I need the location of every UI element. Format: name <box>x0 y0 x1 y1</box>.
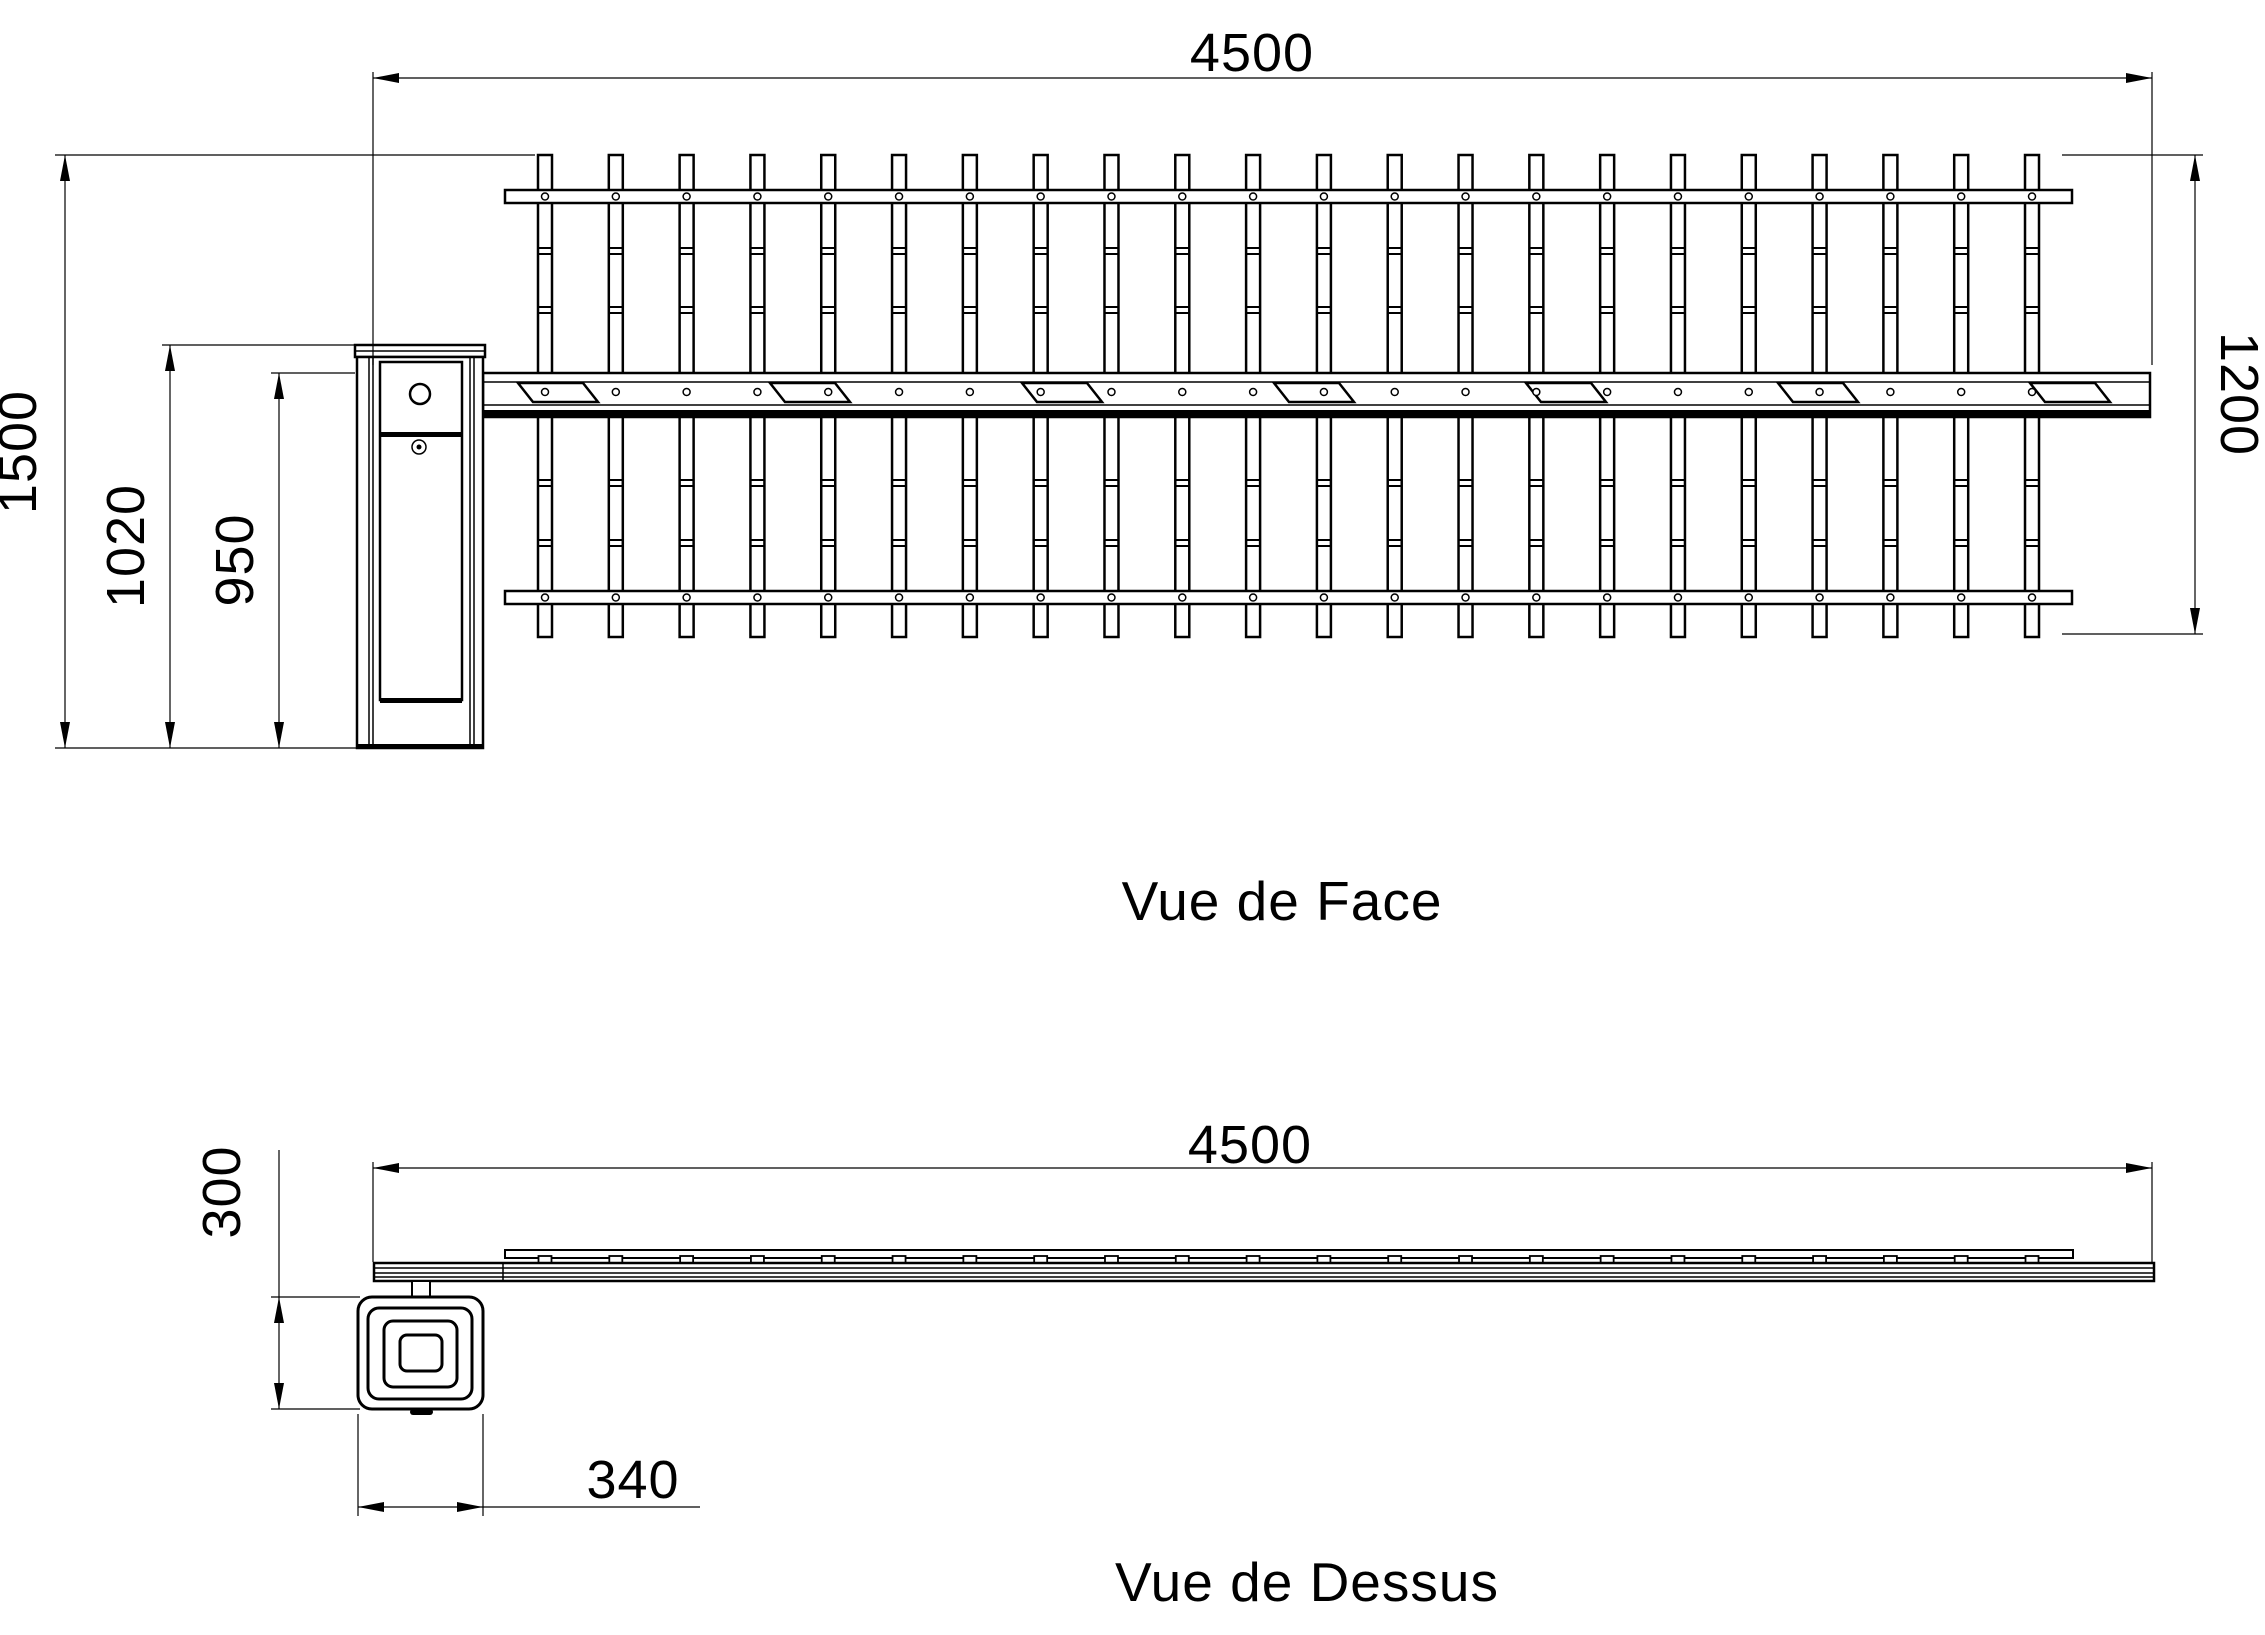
dim-label-front-length: 4500 <box>1190 23 1314 83</box>
rivet-icon <box>966 389 973 396</box>
rivet-icon <box>1816 193 1823 200</box>
rivet-icon <box>1604 389 1611 396</box>
rivet-icon <box>2029 389 2036 396</box>
rivet-icon <box>1179 193 1186 200</box>
rivet-icon <box>1745 594 1752 601</box>
rivet-icon <box>542 389 549 396</box>
rivet-icon <box>1320 193 1327 200</box>
top-view: 4500 300 340 Vue de Dessus <box>192 1115 2154 1613</box>
rivet-icon <box>542 594 549 601</box>
rivet-icon <box>1391 193 1398 200</box>
rivet-icon <box>1250 193 1257 200</box>
keyhole-dot-icon <box>417 445 422 450</box>
rivet-icon <box>2029 594 2036 601</box>
rivet-icon <box>1533 594 1540 601</box>
rivet-icon <box>896 594 903 601</box>
rivet-icon <box>754 193 761 200</box>
rivet-icon <box>1462 193 1469 200</box>
rivet-icon <box>754 389 761 396</box>
drawing-canvas: 4500 1500 1020 950 <box>0 0 2265 1635</box>
rivet-icon <box>683 193 690 200</box>
dimension-boom-axis-height: 950 <box>205 373 355 748</box>
dim-label-skirt-height: 1200 <box>2209 332 2265 456</box>
rivet-icon <box>1958 389 1965 396</box>
boom-bracket-neck <box>412 1281 430 1297</box>
rivet-icon <box>1887 193 1894 200</box>
rivet-icon <box>683 389 690 396</box>
rivet-icon <box>754 594 761 601</box>
reflective-sticker <box>1022 383 1102 402</box>
rivet-icon <box>896 389 903 396</box>
rivet-icon <box>542 193 549 200</box>
rivet-icon <box>1320 389 1327 396</box>
rivet-icon <box>1391 389 1398 396</box>
rivet-icon <box>1745 193 1752 200</box>
post-panel-bottom-band <box>380 698 462 703</box>
rivet-icon <box>1604 193 1611 200</box>
post-panel-divider <box>380 432 462 437</box>
dimension-top-length: 4500 <box>373 1115 2152 1262</box>
post-top-view <box>358 1297 483 1415</box>
rivet-icon <box>1674 193 1681 200</box>
rivet-icon <box>825 594 832 601</box>
dim-label-total-height: 1500 <box>0 390 48 514</box>
rivet-icon <box>1250 594 1257 601</box>
front-view: 4500 1500 1020 950 <box>0 23 2265 932</box>
rivet-icon <box>1037 594 1044 601</box>
rivet-icon <box>612 389 619 396</box>
rivet-icon <box>1462 389 1469 396</box>
rivet-icon <box>1533 389 1540 396</box>
rivet-icon <box>1958 193 1965 200</box>
rivet-icon <box>1250 389 1257 396</box>
rivet-icon <box>1391 594 1398 601</box>
rivet-icon <box>1037 193 1044 200</box>
dim-label-boom-axis-height: 950 <box>205 513 265 606</box>
top-view-title: Vue de Dessus <box>1115 1551 1499 1613</box>
dim-label-post-width: 340 <box>586 1450 679 1510</box>
rivet-icon <box>1533 193 1540 200</box>
boom-pivot-icon <box>410 384 430 404</box>
rivet-icon <box>1816 594 1823 601</box>
rivet-icon <box>612 594 619 601</box>
rivet-icon <box>896 193 903 200</box>
rivet-icon <box>1604 594 1611 601</box>
post-base <box>357 744 483 749</box>
rivet-icon <box>1674 594 1681 601</box>
dim-label-post-depth: 300 <box>192 1145 252 1238</box>
rivet-icon <box>2029 193 2036 200</box>
post-rear-tab <box>410 1409 433 1415</box>
rivet-icon <box>1887 594 1894 601</box>
front-view-title: Vue de Face <box>1122 870 1443 932</box>
skirt-bottom-rail <box>505 591 2072 604</box>
rivet-icon <box>1037 389 1044 396</box>
post-door-panel <box>380 362 462 700</box>
rivet-icon <box>1320 594 1327 601</box>
rivet-icon <box>966 594 973 601</box>
rivet-icon <box>1179 389 1186 396</box>
rivet-icon <box>825 389 832 396</box>
rivet-icon <box>1462 594 1469 601</box>
reflective-sticker <box>518 383 598 402</box>
rivet-icon <box>1108 389 1115 396</box>
reflective-sticker <box>1274 383 1354 402</box>
rivet-icon <box>1816 389 1823 396</box>
rivet-icon <box>683 594 690 601</box>
dimension-post-width: 340 <box>358 1414 700 1516</box>
rivet-icon <box>1108 193 1115 200</box>
dimension-post-depth: 300 <box>192 1145 360 1409</box>
drawing-page: 4500 1500 1020 950 <box>0 0 2265 1635</box>
rivet-icon <box>612 193 619 200</box>
barrier-post <box>355 345 485 749</box>
rivet-icon <box>1674 389 1681 396</box>
dim-label-post-height: 1020 <box>96 484 156 608</box>
reflective-sticker <box>770 383 850 402</box>
rivet-icon <box>1108 594 1115 601</box>
boom-top-view <box>374 1263 2154 1281</box>
dim-label-top-length: 4500 <box>1188 1115 1312 1175</box>
rivet-icon <box>1958 594 1965 601</box>
rivet-icon <box>1887 389 1894 396</box>
rivet-icon <box>825 193 832 200</box>
rivet-icon <box>1179 594 1186 601</box>
reflective-sticker <box>2030 383 2110 402</box>
skirt-top-rail <box>505 190 2072 203</box>
skirt-rail-top-view <box>505 1250 2073 1258</box>
rivet-icon <box>966 193 973 200</box>
rivet-icon <box>1745 389 1752 396</box>
